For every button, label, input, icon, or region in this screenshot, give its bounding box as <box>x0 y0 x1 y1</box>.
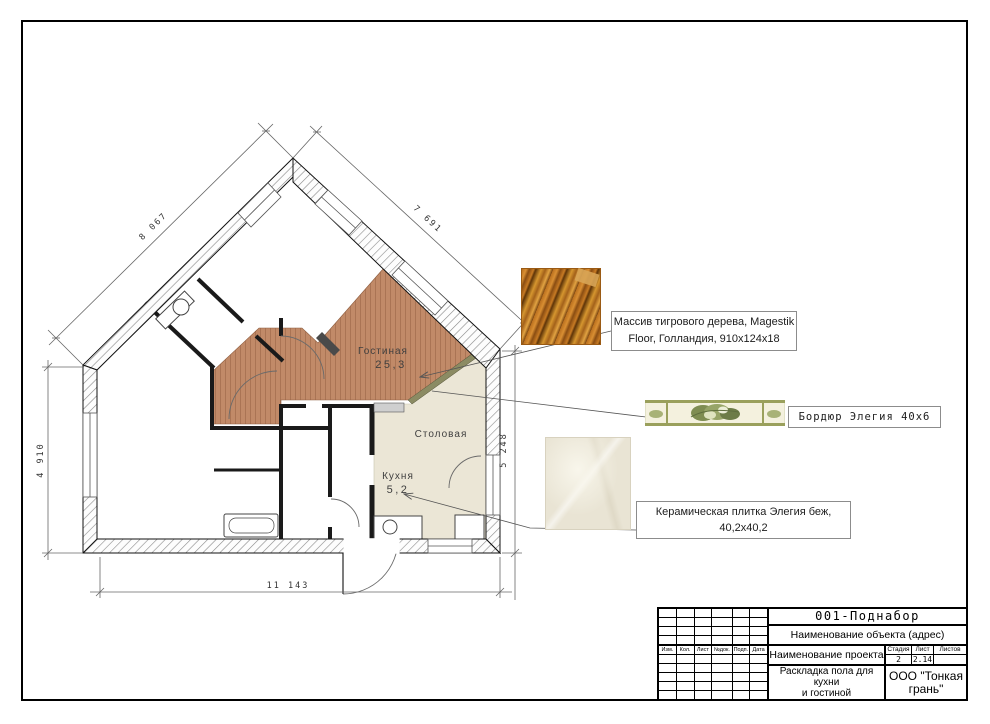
vent-block-wall-stub <box>374 403 404 412</box>
stage-value: 2 <box>886 655 912 664</box>
rev-hdr-list: Лист <box>695 646 713 654</box>
callout-border-line1: Бордюр Элегия 40х6 <box>799 411 931 423</box>
revision-table: Изм. Кол. Лист №док. Подп. Дата <box>659 609 769 699</box>
callout-ceramic-tile: Керамическая плитка Элегия беж, 40,2х40,… <box>636 501 851 539</box>
title-block: Изм. Кол. Лист №док. Подп. Дата 001-Подн… <box>657 607 968 701</box>
border-tile-swatch <box>645 400 785 426</box>
callout-ceramic-line1: Керамическая плитка Элегия беж, <box>656 504 832 520</box>
stage-sheet-table: Стадия Лист Листов 2 2.14 <box>886 646 966 664</box>
entrance-opening <box>344 538 400 554</box>
sheets-header: Листов <box>934 646 966 654</box>
sheet-value: 2.14 <box>912 655 934 664</box>
project-name: Наименование проекта <box>769 646 886 664</box>
kitchen-label: Кухня <box>382 471 414 482</box>
rev-hdr-izm: Изм. <box>659 646 677 654</box>
dim-bottom: 11 143 <box>267 581 310 591</box>
sheet-title-line1: Раскладка пола для кухни <box>769 666 884 688</box>
outer-wall-right <box>486 349 500 553</box>
drawing-page: 8 067 7 691 4 910 5 248 11 143 Гостиная … <box>0 0 990 724</box>
dining-room-label: Столовая <box>415 429 468 440</box>
sheet-title-line2: и гостиной <box>802 688 851 699</box>
rev-hdr-data: Дата <box>750 646 767 654</box>
sheet-title: Раскладка пола для кухни и гостиной <box>769 666 886 699</box>
object-name: Наименование объекта (адрес) <box>769 626 966 646</box>
wood-light-patch <box>575 268 600 287</box>
sheet-header: Лист <box>912 646 934 654</box>
callout-border-tile: Бордюр Элегия 40х6 <box>788 406 941 428</box>
dim-upper-left: 8 067 <box>137 211 169 243</box>
stage-header: Стадия <box>886 646 912 654</box>
rev-hdr-podp: Подп. <box>733 646 751 654</box>
document-code: 001-Поднабор <box>769 609 966 626</box>
company-name: ООО "Тонкая грань" <box>886 666 966 699</box>
tiger-wood-swatch <box>521 268 601 345</box>
company-line1: ООО "Тонкая <box>889 670 963 683</box>
rev-hdr-kol: Кол. <box>677 646 695 654</box>
border-tile-art <box>645 400 785 426</box>
callout-wood-line1: Массив тигрового дерева, Magestik <box>614 314 794 331</box>
rev-hdr-ndok: №док. <box>712 646 732 654</box>
dim-upper-right: 7 691 <box>411 204 444 235</box>
sheets-value <box>934 655 966 664</box>
dim-left: 4 910 <box>36 442 46 478</box>
dim-right: 5 248 <box>499 432 509 468</box>
living-room-label: Гостиная <box>358 346 408 357</box>
callout-ceramic-line2: 40,2х40,2 <box>719 520 767 536</box>
company-line2: грань" <box>909 683 944 696</box>
living-room-area: 25,3 <box>375 359 406 371</box>
callout-wood-floor: Массив тигрового дерева, Magestik Floor,… <box>611 311 797 351</box>
callout-wood-line2: Floor, Голландия, 910х124х18 <box>628 331 779 348</box>
revision-header-row: Изм. Кол. Лист №док. Подп. Дата <box>659 645 767 655</box>
ceramic-tile-swatch <box>545 437 631 530</box>
title-block-main: 001-Поднабор Наименование объекта (адрес… <box>769 609 966 699</box>
